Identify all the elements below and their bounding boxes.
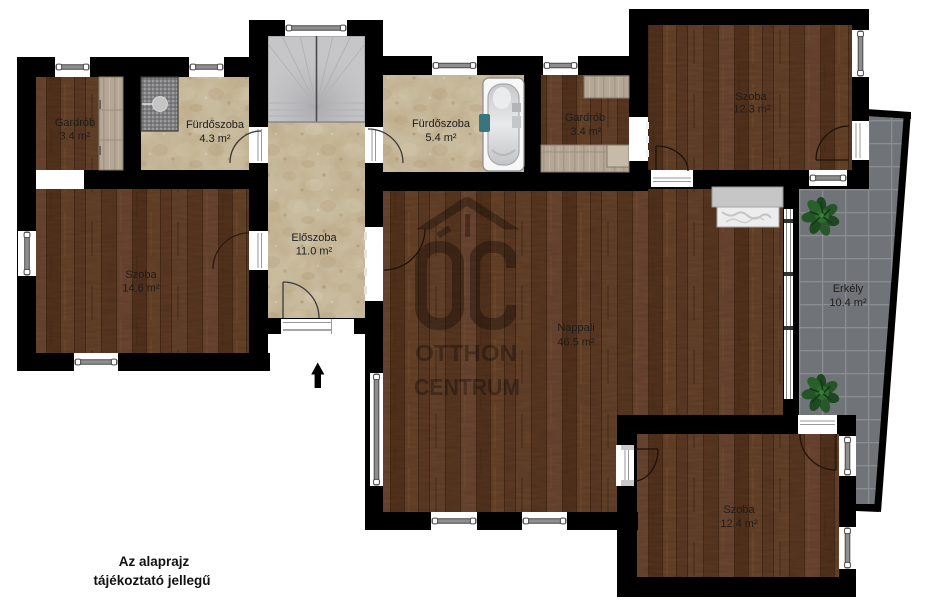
svg-text:Nappali: Nappali bbox=[557, 322, 594, 334]
svg-text:3.4 m²: 3.4 m² bbox=[570, 126, 602, 138]
svg-text:Az alaprajz: Az alaprajz bbox=[119, 554, 190, 569]
svg-text:Gardrób: Gardrób bbox=[55, 117, 95, 129]
svg-text:12.4 m²: 12.4 m² bbox=[720, 518, 758, 530]
svg-text:Előszoba: Előszoba bbox=[291, 232, 337, 244]
svg-text:Fürdőszoba: Fürdőszoba bbox=[412, 118, 471, 130]
svg-text:4.3 m²: 4.3 m² bbox=[199, 133, 231, 145]
svg-text:Szoba: Szoba bbox=[723, 504, 755, 516]
svg-text:Gardrób: Gardrób bbox=[565, 112, 605, 124]
svg-text:Szoba: Szoba bbox=[735, 91, 767, 103]
svg-text:Szoba: Szoba bbox=[125, 269, 157, 281]
svg-text:12.3 m²: 12.3 m² bbox=[733, 104, 771, 116]
svg-text:Fürdőszoba: Fürdőszoba bbox=[186, 119, 245, 131]
svg-text:3.4 m²: 3.4 m² bbox=[59, 131, 91, 143]
svg-text:Erkély: Erkély bbox=[833, 283, 864, 295]
svg-text:tájékoztató jellegű: tájékoztató jellegű bbox=[93, 573, 210, 588]
svg-text:46.5 m²: 46.5 m² bbox=[557, 337, 595, 349]
svg-text:CENTRUM: CENTRUM bbox=[414, 374, 520, 400]
svg-text:5.4 m²: 5.4 m² bbox=[425, 132, 457, 144]
svg-text:10.4 m²: 10.4 m² bbox=[829, 297, 867, 309]
svg-text:14.6 m²: 14.6 m² bbox=[122, 283, 160, 295]
svg-text:OTTHON: OTTHON bbox=[415, 340, 517, 366]
svg-text:11.0 m²: 11.0 m² bbox=[296, 246, 333, 258]
